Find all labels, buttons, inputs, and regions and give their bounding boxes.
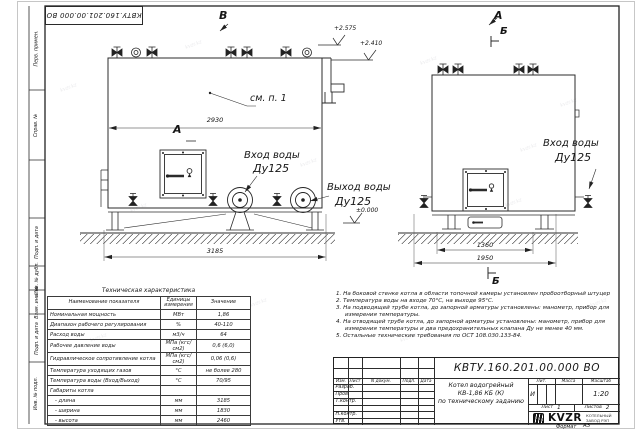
row-name: Номинальная мощность <box>48 310 161 320</box>
scale-value: 1:20 <box>582 384 620 404</box>
elevation-ground: ±0.000 <box>356 208 378 214</box>
row-name: - ширина <box>48 406 161 416</box>
table-row: Расход водым3/ч64 <box>48 330 251 340</box>
drain-valve-icon <box>129 194 137 206</box>
title-block: КВТУ.160.201.00.000 ВО Изм. Лист N докум… <box>333 357 619 424</box>
frame-strip-cell: Подп. и дата <box>29 218 45 266</box>
sheet-value: 1 <box>557 405 561 411</box>
role-nkontr: Н.контр. <box>336 412 366 418</box>
row-value: 0,06 (0,6) <box>197 353 251 366</box>
row-value: не более 280 <box>197 366 251 376</box>
rev-col-list: Лист <box>348 378 362 384</box>
row-name: Температура уходящих газов <box>48 366 161 376</box>
row-value: 1830 <box>197 406 251 416</box>
side-valve-icon <box>420 196 432 208</box>
table-row: - высотамм2460 <box>48 416 251 426</box>
row-value: 0,6 (6,0) <box>197 340 251 353</box>
view-label-a-left: А <box>173 124 182 135</box>
row-units: МПа (кгс/см2) <box>161 340 197 353</box>
doc-number-stamp: КВТУ.160.201.00.000 ВО <box>45 6 143 25</box>
valve-icon <box>281 47 291 58</box>
frame-strip-cell: Инв. № подл. <box>29 362 45 424</box>
note-item: 5. Остальные технические требования по О… <box>336 333 619 340</box>
row-units: мм <box>161 406 197 416</box>
section-label-b-bottom: Б <box>492 277 500 287</box>
row-name: Температура воды (Вход/Выход) <box>48 376 161 386</box>
frame-strip-cell: Взам. инв. № <box>29 290 45 314</box>
frame-strip-label: Подп. и дата <box>35 322 40 355</box>
row-name: Рабочее давление воды <box>48 340 161 353</box>
valve-icon <box>226 47 236 58</box>
dim-front-length: 3185 <box>195 248 235 255</box>
row-name: - длина <box>48 396 161 406</box>
inlet-dn-side: Ду125 <box>555 152 591 163</box>
rev-col-podp: Подп. <box>400 378 418 384</box>
section-label-b-top: Б <box>500 27 508 37</box>
valve-icon <box>453 64 463 75</box>
inlet-dn-front: Ду125 <box>253 163 289 174</box>
mass-header: Масса <box>555 378 582 384</box>
dim-side-outer: 1950 <box>465 255 505 262</box>
row-value: 1,86 <box>197 310 251 320</box>
role-razrab: Разраб. <box>336 385 366 391</box>
table-row: Диапазон рабочего регулирования%40-110 <box>48 320 251 330</box>
rev-col-doc: N докум. <box>362 378 400 384</box>
valve-icon <box>242 47 252 58</box>
dim-side-inner: 1360 <box>465 242 505 249</box>
row-name: - высота <box>48 416 161 426</box>
format-label: Формат <box>556 425 576 430</box>
valve-icon <box>147 47 157 58</box>
boiler-door-icon <box>463 169 508 211</box>
drawing-sheet: КВТУ.160.201.00.000 ВО Перв. примен. Спр… <box>0 0 644 430</box>
row-name: Диапазон рабочего регулирования <box>48 320 161 330</box>
lit-value: И <box>528 384 537 404</box>
table-row: Температура уходящих газов°Сне более 280 <box>48 366 251 376</box>
view-label-a: А <box>494 10 503 21</box>
rev-col-izm: Изм. <box>334 378 348 384</box>
frame-strip-label: Подп. и дата <box>35 226 40 259</box>
role-prov: Пров. <box>336 392 366 398</box>
table-row: Температура воды (Вход/Выход)°С70/95 <box>48 376 251 386</box>
side-valve-icon <box>575 196 592 208</box>
valve-icon <box>112 47 122 58</box>
note-item: 1. На боковой стенке котла в области топ… <box>336 291 619 298</box>
valve-icon <box>514 64 524 75</box>
row-units: % <box>161 320 197 330</box>
note-item: 4. На отводящей трубе котла, до запорной… <box>336 319 619 333</box>
sheets-label: Листов <box>585 405 602 410</box>
frame-strip-label: Перв. примен. <box>35 30 40 66</box>
col-value: Значение <box>197 297 251 310</box>
view-label-b: В <box>219 10 227 21</box>
dim-front-width: 2930 <box>195 117 235 124</box>
tech-table: Наименование показателя Единицы измерени… <box>47 296 251 426</box>
row-value: 3185 <box>197 396 251 406</box>
flange-icon <box>228 188 253 213</box>
row-units: МВт <box>161 310 197 320</box>
support-frame-icon <box>106 212 324 230</box>
company-name: KVZR <box>548 412 582 424</box>
row-value <box>197 386 251 396</box>
row-value: 40-110 <box>197 320 251 330</box>
ash-hatch-icon <box>468 217 502 228</box>
table-row: Номинальная мощностьМВт1,86 <box>48 310 251 320</box>
notes-list: 1. На боковой стенке котла в области топ… <box>336 291 619 340</box>
table-row: Рабочее давление водыМПа (кгс/см2)0,6 (6… <box>48 340 251 353</box>
table-row: - длинамм3185 <box>48 396 251 406</box>
row-units: мм <box>161 396 197 406</box>
sheet-cell: Лист 1 <box>528 404 574 411</box>
frame-strip-label: Инв. № подл. <box>35 376 40 409</box>
row-units: мм <box>161 416 197 426</box>
cap-icon <box>303 48 312 57</box>
callout-see-note: см. п. 1 <box>250 94 287 104</box>
support-frame-icon <box>432 215 575 229</box>
inlet-label-front: Вход воды <box>244 151 300 161</box>
valve-icon <box>528 64 538 75</box>
row-name: Габариты котла <box>48 386 161 396</box>
table-row: - ширинамм1830 <box>48 406 251 416</box>
table-row: Габариты котла <box>48 386 251 396</box>
front-view-linework <box>80 47 344 233</box>
col-units: Единицы измерения <box>161 297 197 310</box>
outlet-label-front: Выход воды <box>327 183 391 193</box>
elevation-top: +2.575 <box>334 26 356 32</box>
sheets-value: 2 <box>606 405 610 411</box>
row-units: м3/ч <box>161 330 197 340</box>
cap-icon <box>132 48 141 57</box>
col-name: Наименование показателя <box>48 297 161 310</box>
row-value: 2460 <box>197 416 251 426</box>
product-name-line3: по техническому заданию <box>434 397 528 406</box>
inlet-label-side: Вход воды <box>543 139 599 149</box>
tech-table-title: Техническая характеристика <box>47 287 250 294</box>
note-item: 3. На подводящей трубе котла, до запорно… <box>336 305 619 319</box>
frame-strip-cell: Подп. и дата <box>29 314 45 362</box>
frame-strip-cell: Справ. № <box>29 90 45 160</box>
note-item: 2. Температура воды на входе 70°С, на вы… <box>336 298 619 305</box>
role-tkontr: Т.контр. <box>336 399 366 405</box>
table-row: Гидравлическое сопротивление котлаМПа (к… <box>48 353 251 366</box>
drain-valve-icon <box>273 194 281 206</box>
boiler-door-icon <box>160 150 206 198</box>
valve-icon <box>438 64 448 75</box>
flange-icon <box>291 188 316 213</box>
row-units: МПа (кгс/см2) <box>161 353 197 366</box>
rev-col-data: Дата <box>418 378 434 384</box>
sheet-label: Лист <box>541 405 553 410</box>
frame-strip-cell: Перв. примен. <box>29 6 45 90</box>
outlet-dn-front: Ду125 <box>335 196 371 207</box>
row-units: °С <box>161 376 197 386</box>
tech-table-header: Наименование показателя Единицы измерени… <box>48 297 251 310</box>
role-utv: Утв. <box>336 419 366 425</box>
drain-valve-icon <box>209 194 217 206</box>
company-tagline: КОТЕЛЬНЫЙ ЗАВОД РЭП <box>586 414 612 423</box>
elevation-flange: +2.410 <box>360 41 382 47</box>
ground-hatch <box>80 234 335 244</box>
sheets-cell: Листов 2 <box>574 404 620 411</box>
title-doc-number: КВТУ.160.201.00.000 ВО <box>434 358 620 378</box>
row-value: 64 <box>197 330 251 340</box>
row-name: Гидравлическое сопротивление котла <box>48 353 161 366</box>
format-value: А3 <box>583 424 590 430</box>
flue-outlet-icon <box>322 58 344 103</box>
row-units: °С <box>161 366 197 376</box>
frame-strip-label: Справ. № <box>35 113 40 136</box>
kvzr-logo-icon <box>533 413 544 424</box>
row-units <box>161 386 197 396</box>
row-value: 70/95 <box>197 376 251 386</box>
